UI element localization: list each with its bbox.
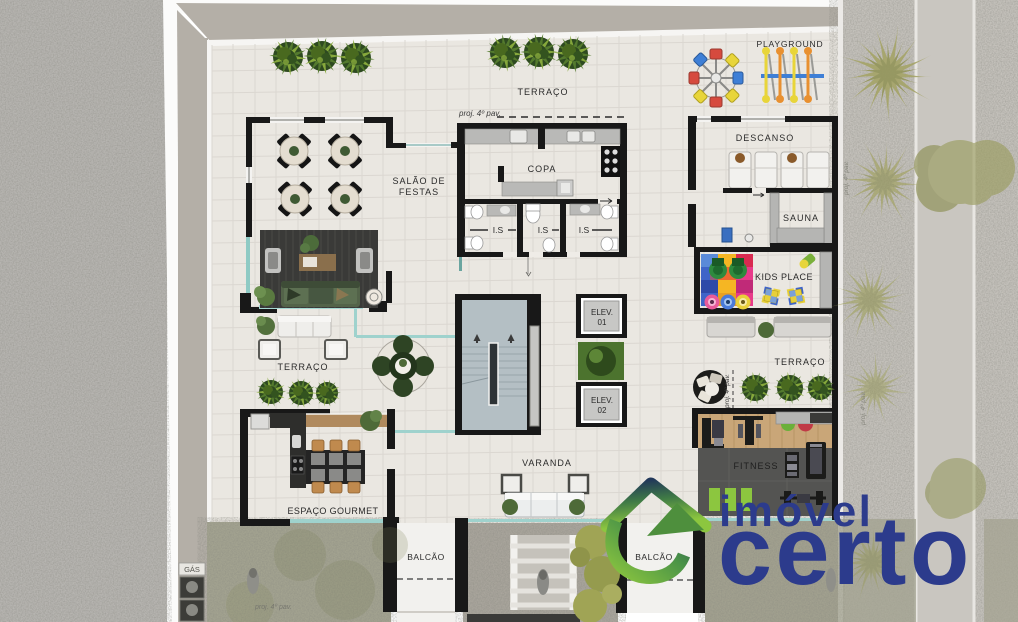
- svg-text:FITNESS: FITNESS: [733, 461, 778, 471]
- svg-text:I.S: I.S: [579, 225, 590, 235]
- svg-text:DESCANSO: DESCANSO: [736, 133, 795, 143]
- svg-text:BALCÃO: BALCÃO: [635, 552, 673, 562]
- svg-text:VARANDA: VARANDA: [522, 458, 572, 468]
- svg-text:TERRAÇO: TERRAÇO: [774, 357, 825, 367]
- svg-text:proj. 4º pav.: proj. 4º pav.: [254, 604, 292, 611]
- svg-text:TERRAÇO: TERRAÇO: [277, 362, 328, 372]
- svg-text:01: 01: [598, 318, 607, 327]
- svg-text:certo: certo: [718, 496, 973, 605]
- svg-text:proj. 4º pav.: proj. 4º pav.: [724, 374, 731, 409]
- svg-text:GÁS: GÁS: [184, 565, 200, 574]
- svg-text:I.S: I.S: [538, 225, 549, 235]
- svg-text:SAUNA: SAUNA: [783, 213, 819, 223]
- svg-text:proj. 4º pav.: proj. 4º pav.: [860, 391, 867, 426]
- svg-text:ELEV.: ELEV.: [591, 308, 613, 317]
- svg-text:proj. 4º pav.: proj. 4º pav.: [458, 109, 501, 118]
- svg-text:BALCÃO: BALCÃO: [407, 552, 445, 562]
- svg-text:I.S: I.S: [493, 225, 504, 235]
- svg-text:02: 02: [598, 406, 607, 415]
- svg-text:TERRAÇO: TERRAÇO: [517, 87, 568, 97]
- svg-text:SALÃO DE: SALÃO DE: [392, 176, 445, 186]
- svg-text:COPA: COPA: [528, 164, 557, 174]
- svg-text:ELEV.: ELEV.: [591, 396, 613, 405]
- svg-text:KIDS PLACE: KIDS PLACE: [755, 272, 813, 282]
- svg-text:ESPAÇO GOURMET: ESPAÇO GOURMET: [288, 506, 379, 516]
- svg-text:proj. 4º pav.: proj. 4º pav.: [843, 161, 850, 196]
- svg-text:FESTAS: FESTAS: [399, 187, 439, 197]
